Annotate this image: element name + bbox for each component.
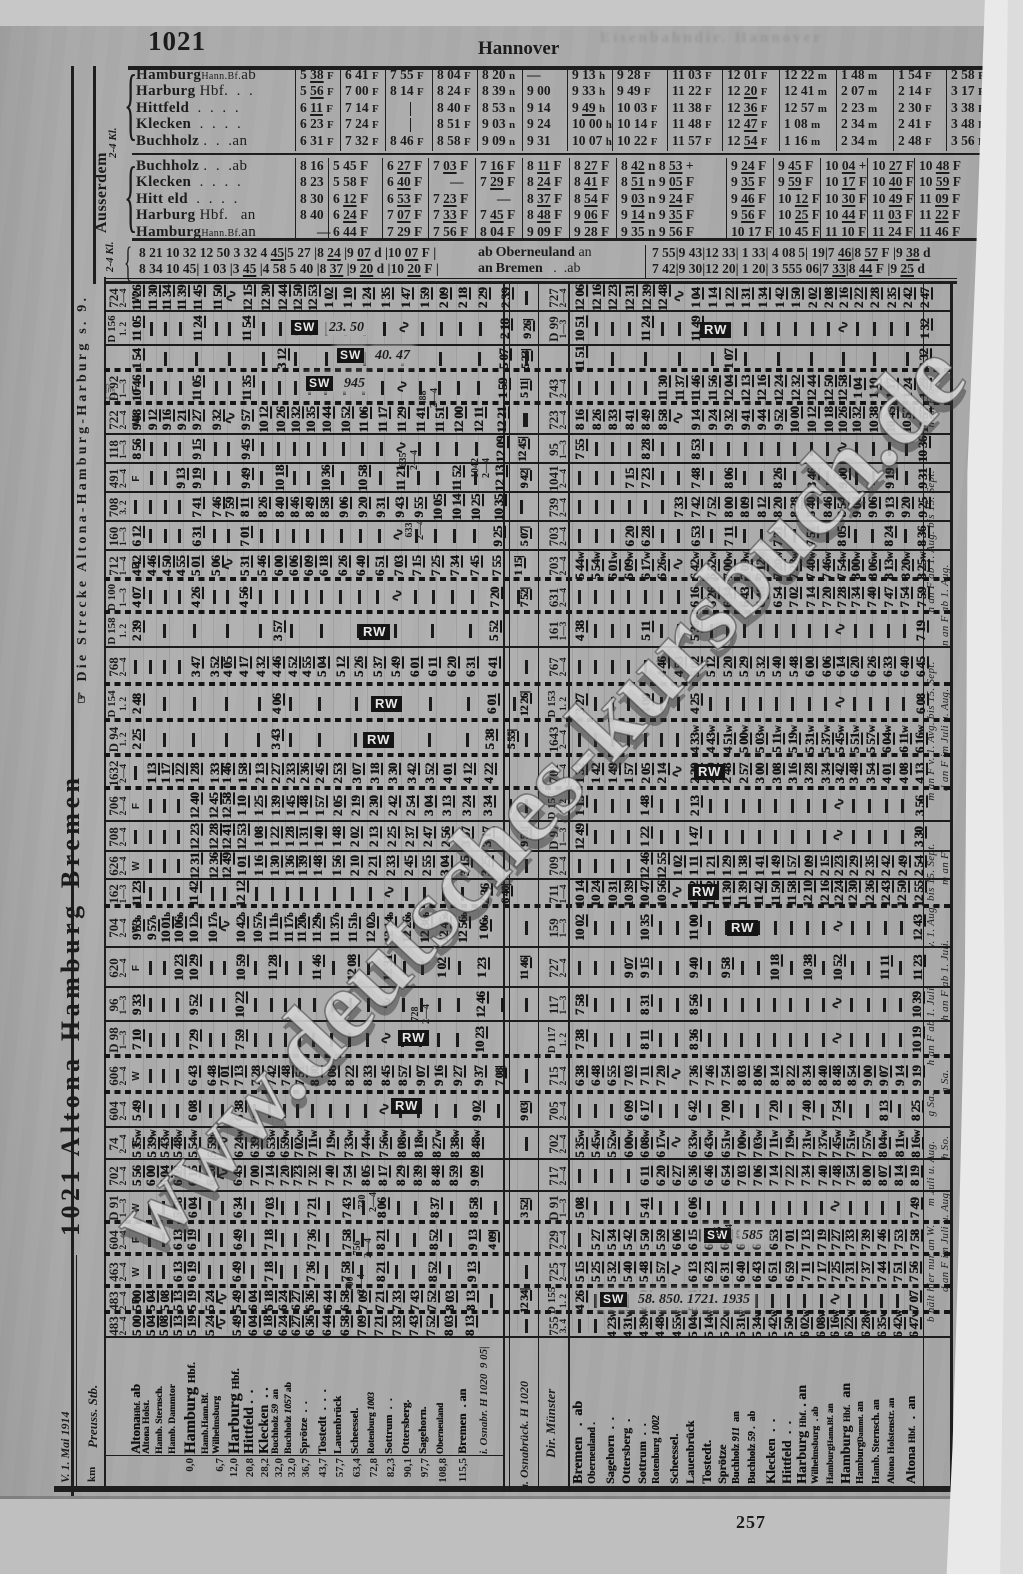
svg-text:www.deutsches-kursbuch.de: www.deutsches-kursbuch.de (88, 322, 986, 1273)
